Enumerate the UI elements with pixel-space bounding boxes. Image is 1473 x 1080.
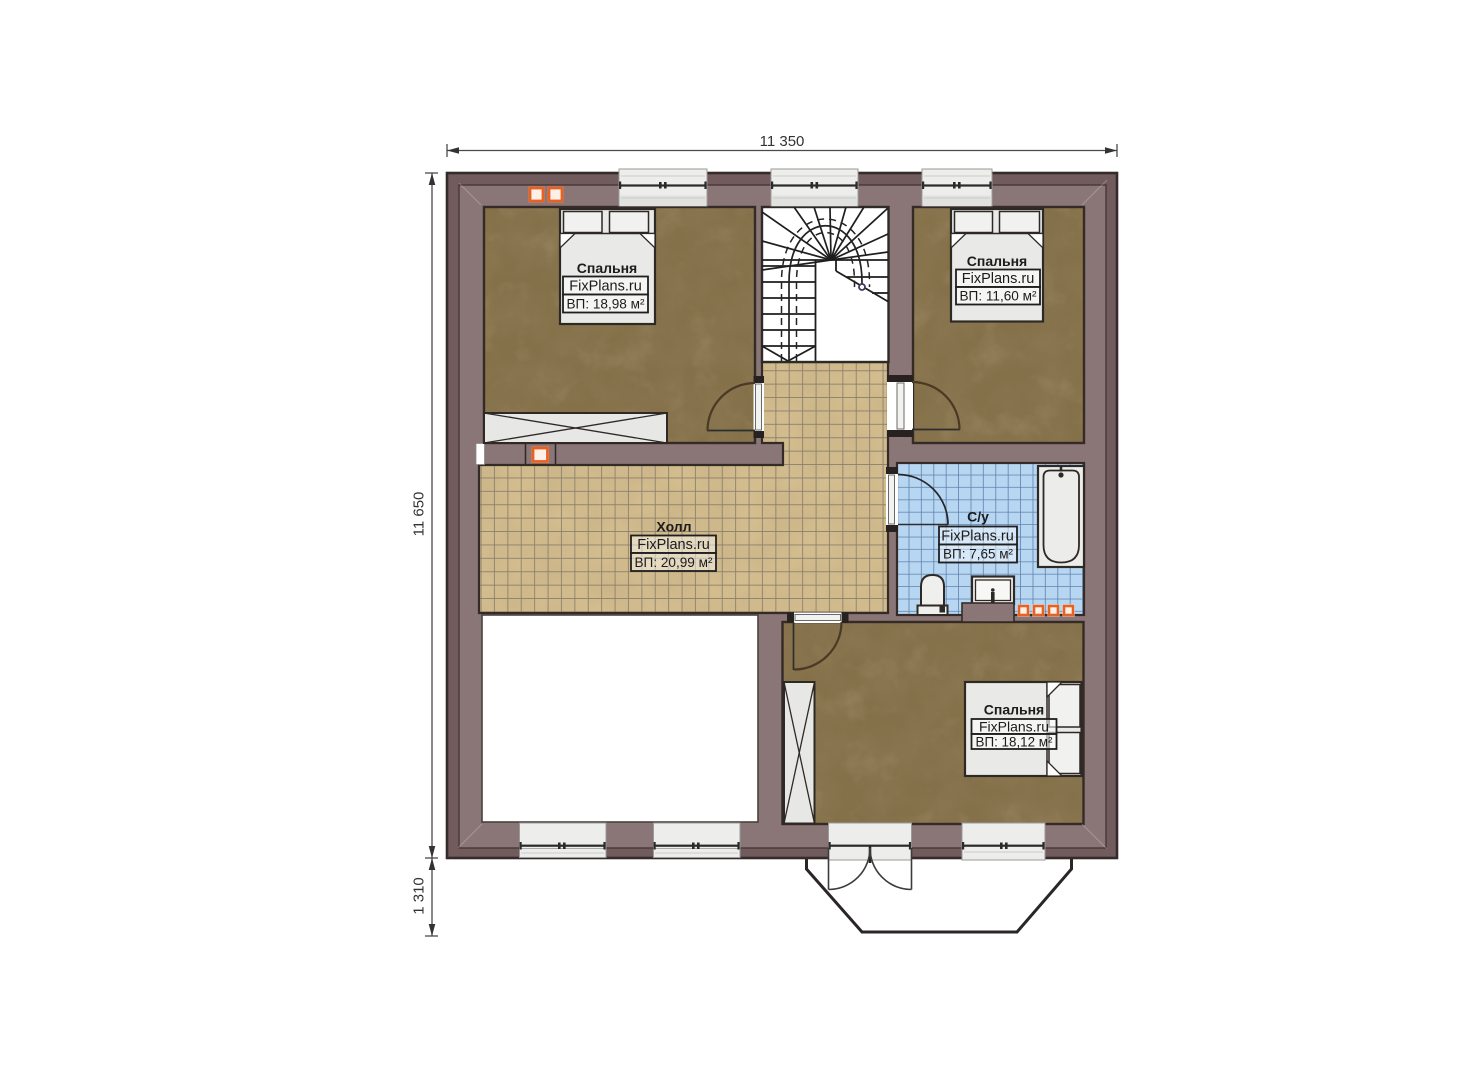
- svg-text:ВП: 11,60 м²: ВП: 11,60 м²: [960, 288, 1037, 304]
- svg-text:Холл: Холл: [656, 519, 691, 535]
- svg-text:ВП: 7,65 м²: ВП: 7,65 м²: [943, 546, 1013, 562]
- svg-text:ВП: 18,12 м²: ВП: 18,12 м²: [976, 734, 1053, 749]
- svg-text:Спальня: Спальня: [577, 260, 637, 276]
- svg-text:FixPlans.ru: FixPlans.ru: [979, 718, 1049, 734]
- svg-text:11 350: 11 350: [760, 133, 805, 150]
- svg-text:FixPlans.ru: FixPlans.ru: [569, 279, 642, 295]
- svg-text:С/у: С/у: [967, 509, 989, 525]
- svg-text:FixPlans.ru: FixPlans.ru: [941, 529, 1014, 545]
- svg-text:ВП: 18,98 м²: ВП: 18,98 м²: [567, 296, 645, 312]
- svg-text:Спальня: Спальня: [984, 702, 1044, 718]
- svg-text:FixPlans.ru: FixPlans.ru: [962, 271, 1035, 287]
- svg-text:1 310: 1 310: [411, 877, 428, 915]
- svg-text:Спальня: Спальня: [967, 253, 1027, 269]
- svg-text:11 650: 11 650: [411, 492, 428, 537]
- svg-text:FixPlans.ru: FixPlans.ru: [637, 537, 710, 553]
- svg-text:ВП: 20,99 м²: ВП: 20,99 м²: [635, 554, 713, 570]
